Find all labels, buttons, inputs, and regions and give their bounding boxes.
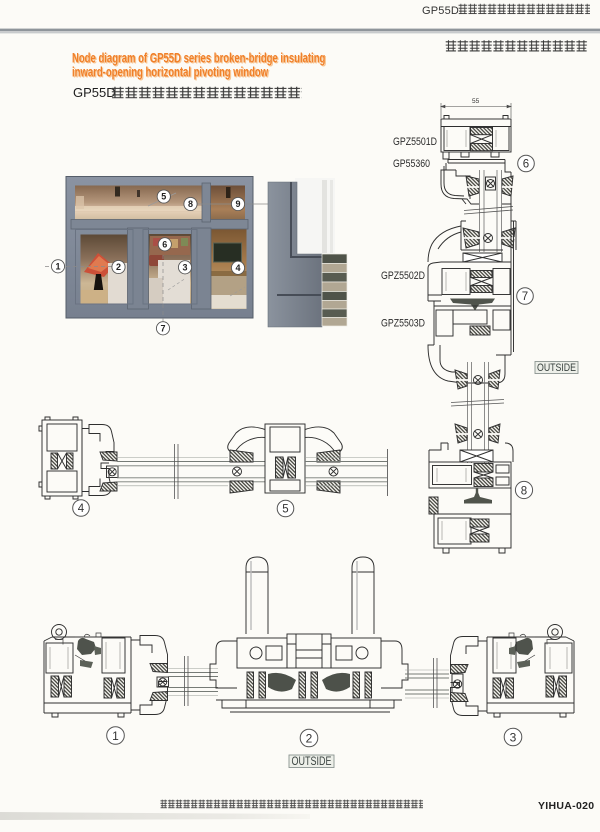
svg-text:4: 4 [235,263,240,273]
svg-text:GPZ5501D: GPZ5501D [393,136,437,148]
svg-text:7: 7 [522,291,528,303]
svg-text:OUTSIDE: OUTSIDE [537,362,576,374]
svg-text:GPZ5503D: GPZ5503D [381,318,425,330]
svg-text:3: 3 [510,730,517,744]
svg-text:GPZ5502D: GPZ5502D [381,270,425,282]
svg-text:6: 6 [523,159,529,171]
svg-text:7: 7 [160,323,165,333]
svg-text:8: 8 [521,485,527,497]
svg-text:GP55D: GP55D [422,5,459,17]
svg-text:8: 8 [188,199,193,209]
svg-text:inward-opening horizontal pivo: inward-opening horizontal pivoting windo… [72,64,269,80]
svg-text:OUTSIDE: OUTSIDE [292,756,332,768]
svg-text:55: 55 [472,98,480,105]
svg-text:2: 2 [306,731,313,745]
svg-text:YIHUA-020: YIHUA-020 [538,800,594,812]
svg-text:9: 9 [235,199,240,209]
svg-text:4: 4 [78,503,85,515]
svg-text:6: 6 [162,239,167,249]
svg-text:2: 2 [116,262,121,272]
svg-text:GP55360: GP55360 [393,158,430,170]
svg-text:GP55D: GP55D [73,85,116,100]
svg-text:3: 3 [182,262,187,272]
svg-text:5: 5 [161,192,166,202]
svg-text:1: 1 [55,261,60,271]
svg-text:5: 5 [282,504,288,516]
svg-text:1: 1 [112,729,119,743]
